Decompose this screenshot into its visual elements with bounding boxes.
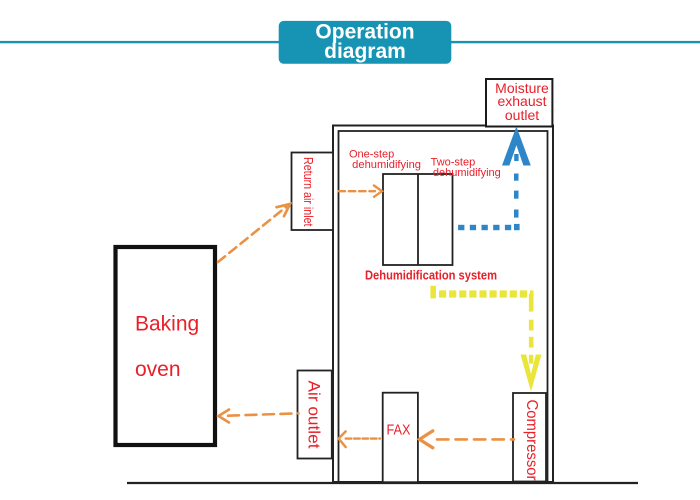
- svg-text:dehumidifying: dehumidifying: [352, 159, 421, 171]
- svg-text:Dehumidification system: Dehumidification system: [365, 268, 497, 283]
- svg-text:dehumidifying: dehumidifying: [433, 167, 501, 179]
- svg-text:Return air inlet: Return air inlet: [301, 157, 315, 227]
- svg-text:outlet: outlet: [505, 107, 539, 123]
- svg-text:Baking: Baking: [135, 313, 199, 336]
- svg-text:Compressor: Compressor: [523, 400, 540, 482]
- svg-text:oven: oven: [135, 358, 181, 381]
- svg-text:FAX: FAX: [387, 422, 411, 438]
- svg-text:Air outlet: Air outlet: [305, 381, 323, 449]
- svg-text:diagram: diagram: [324, 40, 406, 63]
